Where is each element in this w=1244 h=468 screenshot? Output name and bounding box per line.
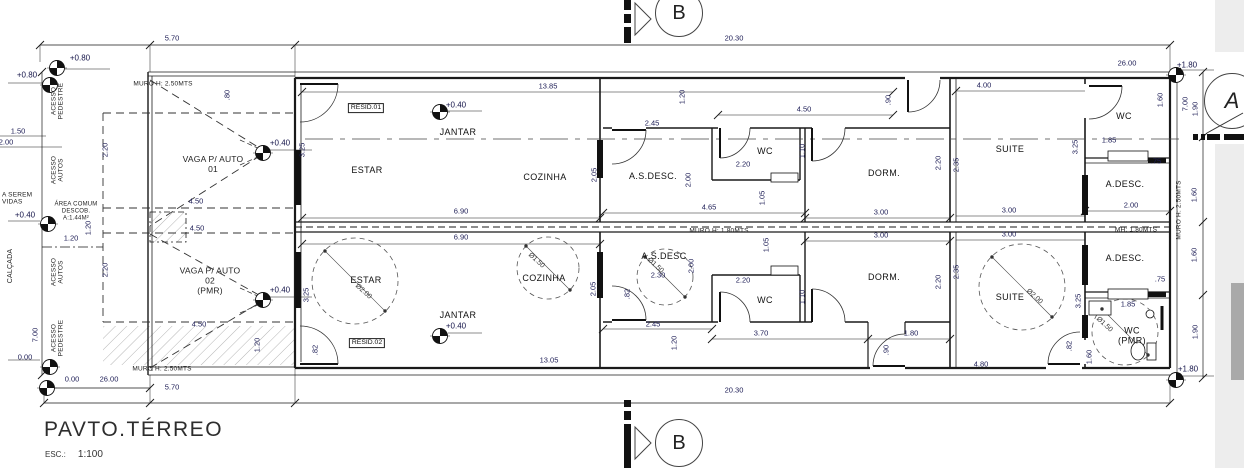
section-letter: A [1225,88,1240,114]
plan-drawing [0,0,1244,468]
section-cut-line-b [624,0,631,468]
scale-row: ESC.: 1:100 [45,449,103,460]
section-letter: B [672,432,685,455]
scale-value: 1:100 [78,449,103,460]
hatched-walkway [103,326,295,365]
scale-label: ESC.: [45,450,66,459]
section-marker-b-bottom: B [655,419,703,467]
scrollbar-thumb[interactable] [1231,283,1244,380]
floorplan-canvas: ESTARJANTARCOZINHAA.S.DESC.WCDORM.SUITEW… [0,0,1244,468]
window-bars [295,140,1166,338]
section-letter: B [672,2,685,25]
page-title: PAVTO.TÉRREO [44,418,223,442]
